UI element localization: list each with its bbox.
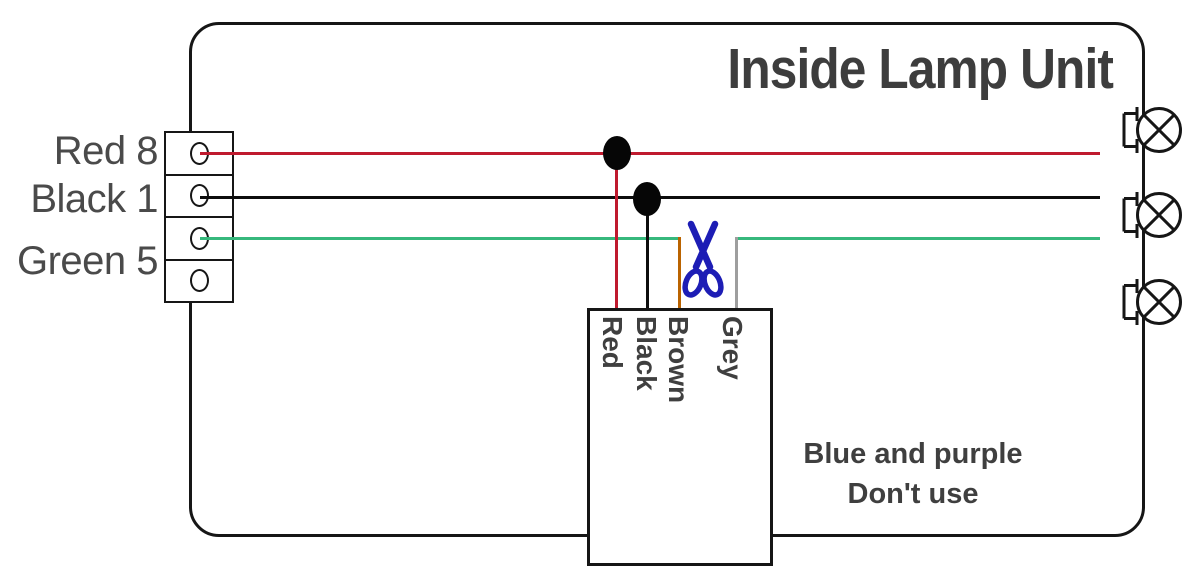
green-wire-left-segment [200, 237, 681, 240]
red-wire-drop [615, 153, 618, 310]
junction-dot-black [633, 182, 661, 216]
green-wire-right-segment [735, 237, 1100, 240]
lamp-circle-x-icon [1116, 95, 1186, 165]
warning-note-line2: Don't use [788, 474, 1038, 514]
wiring-diagram: Inside Lamp Unit Red 8 Black 1 Green 5 [0, 0, 1200, 584]
scissors-cut-icon [682, 220, 724, 302]
pin-label-black: Black 1 [0, 177, 158, 221]
terminal-hole-icon [190, 269, 209, 292]
lamp-circle-x-icon [1116, 180, 1186, 250]
diagram-title: Inside Lamp Unit [727, 36, 1094, 102]
box-wire-label-black: Black [632, 316, 662, 391]
pin-label-green: Green 5 [0, 239, 158, 283]
warning-note-line1: Blue and purple [788, 434, 1038, 474]
grey-wire-drop [735, 237, 738, 310]
box-wire-label-brown: Brown [664, 316, 694, 403]
lamp-circle-x-icon [1116, 267, 1186, 337]
box-wire-label-grey: Grey [718, 316, 748, 380]
pin-label-red: Red 8 [0, 129, 158, 173]
junction-dot-red [603, 136, 631, 170]
warning-note: Blue and purple Don't use [788, 434, 1038, 514]
brown-wire-drop [678, 237, 681, 310]
box-wire-label-red: Red [598, 316, 628, 369]
terminal-block [164, 131, 234, 303]
red-wire-horizontal [200, 152, 1100, 155]
terminal-cell-unused [164, 261, 234, 304]
